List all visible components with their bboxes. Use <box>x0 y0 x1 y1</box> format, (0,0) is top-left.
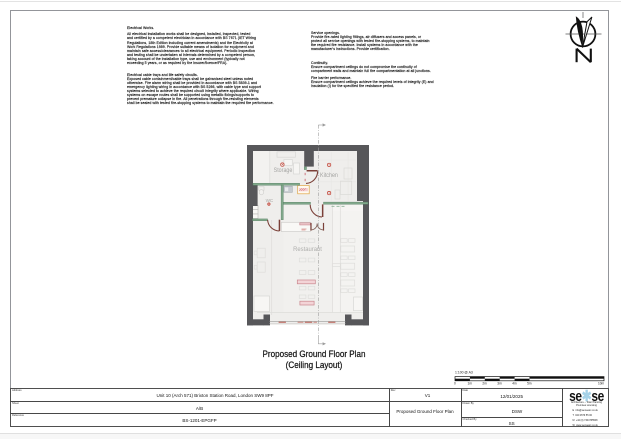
svg-text:1m: 1m <box>468 382 473 386</box>
svg-text:3m: 3m <box>497 382 502 386</box>
svg-text:5m: 5m <box>527 382 532 386</box>
svg-text:10m: 10m <box>598 382 605 386</box>
svg-text:4m: 4m <box>512 382 517 386</box>
svg-text:0: 0 <box>454 382 456 386</box>
svg-text:1:100 @ A3: 1:100 @ A3 <box>455 371 473 375</box>
svg-text:2m: 2m <box>482 382 487 386</box>
